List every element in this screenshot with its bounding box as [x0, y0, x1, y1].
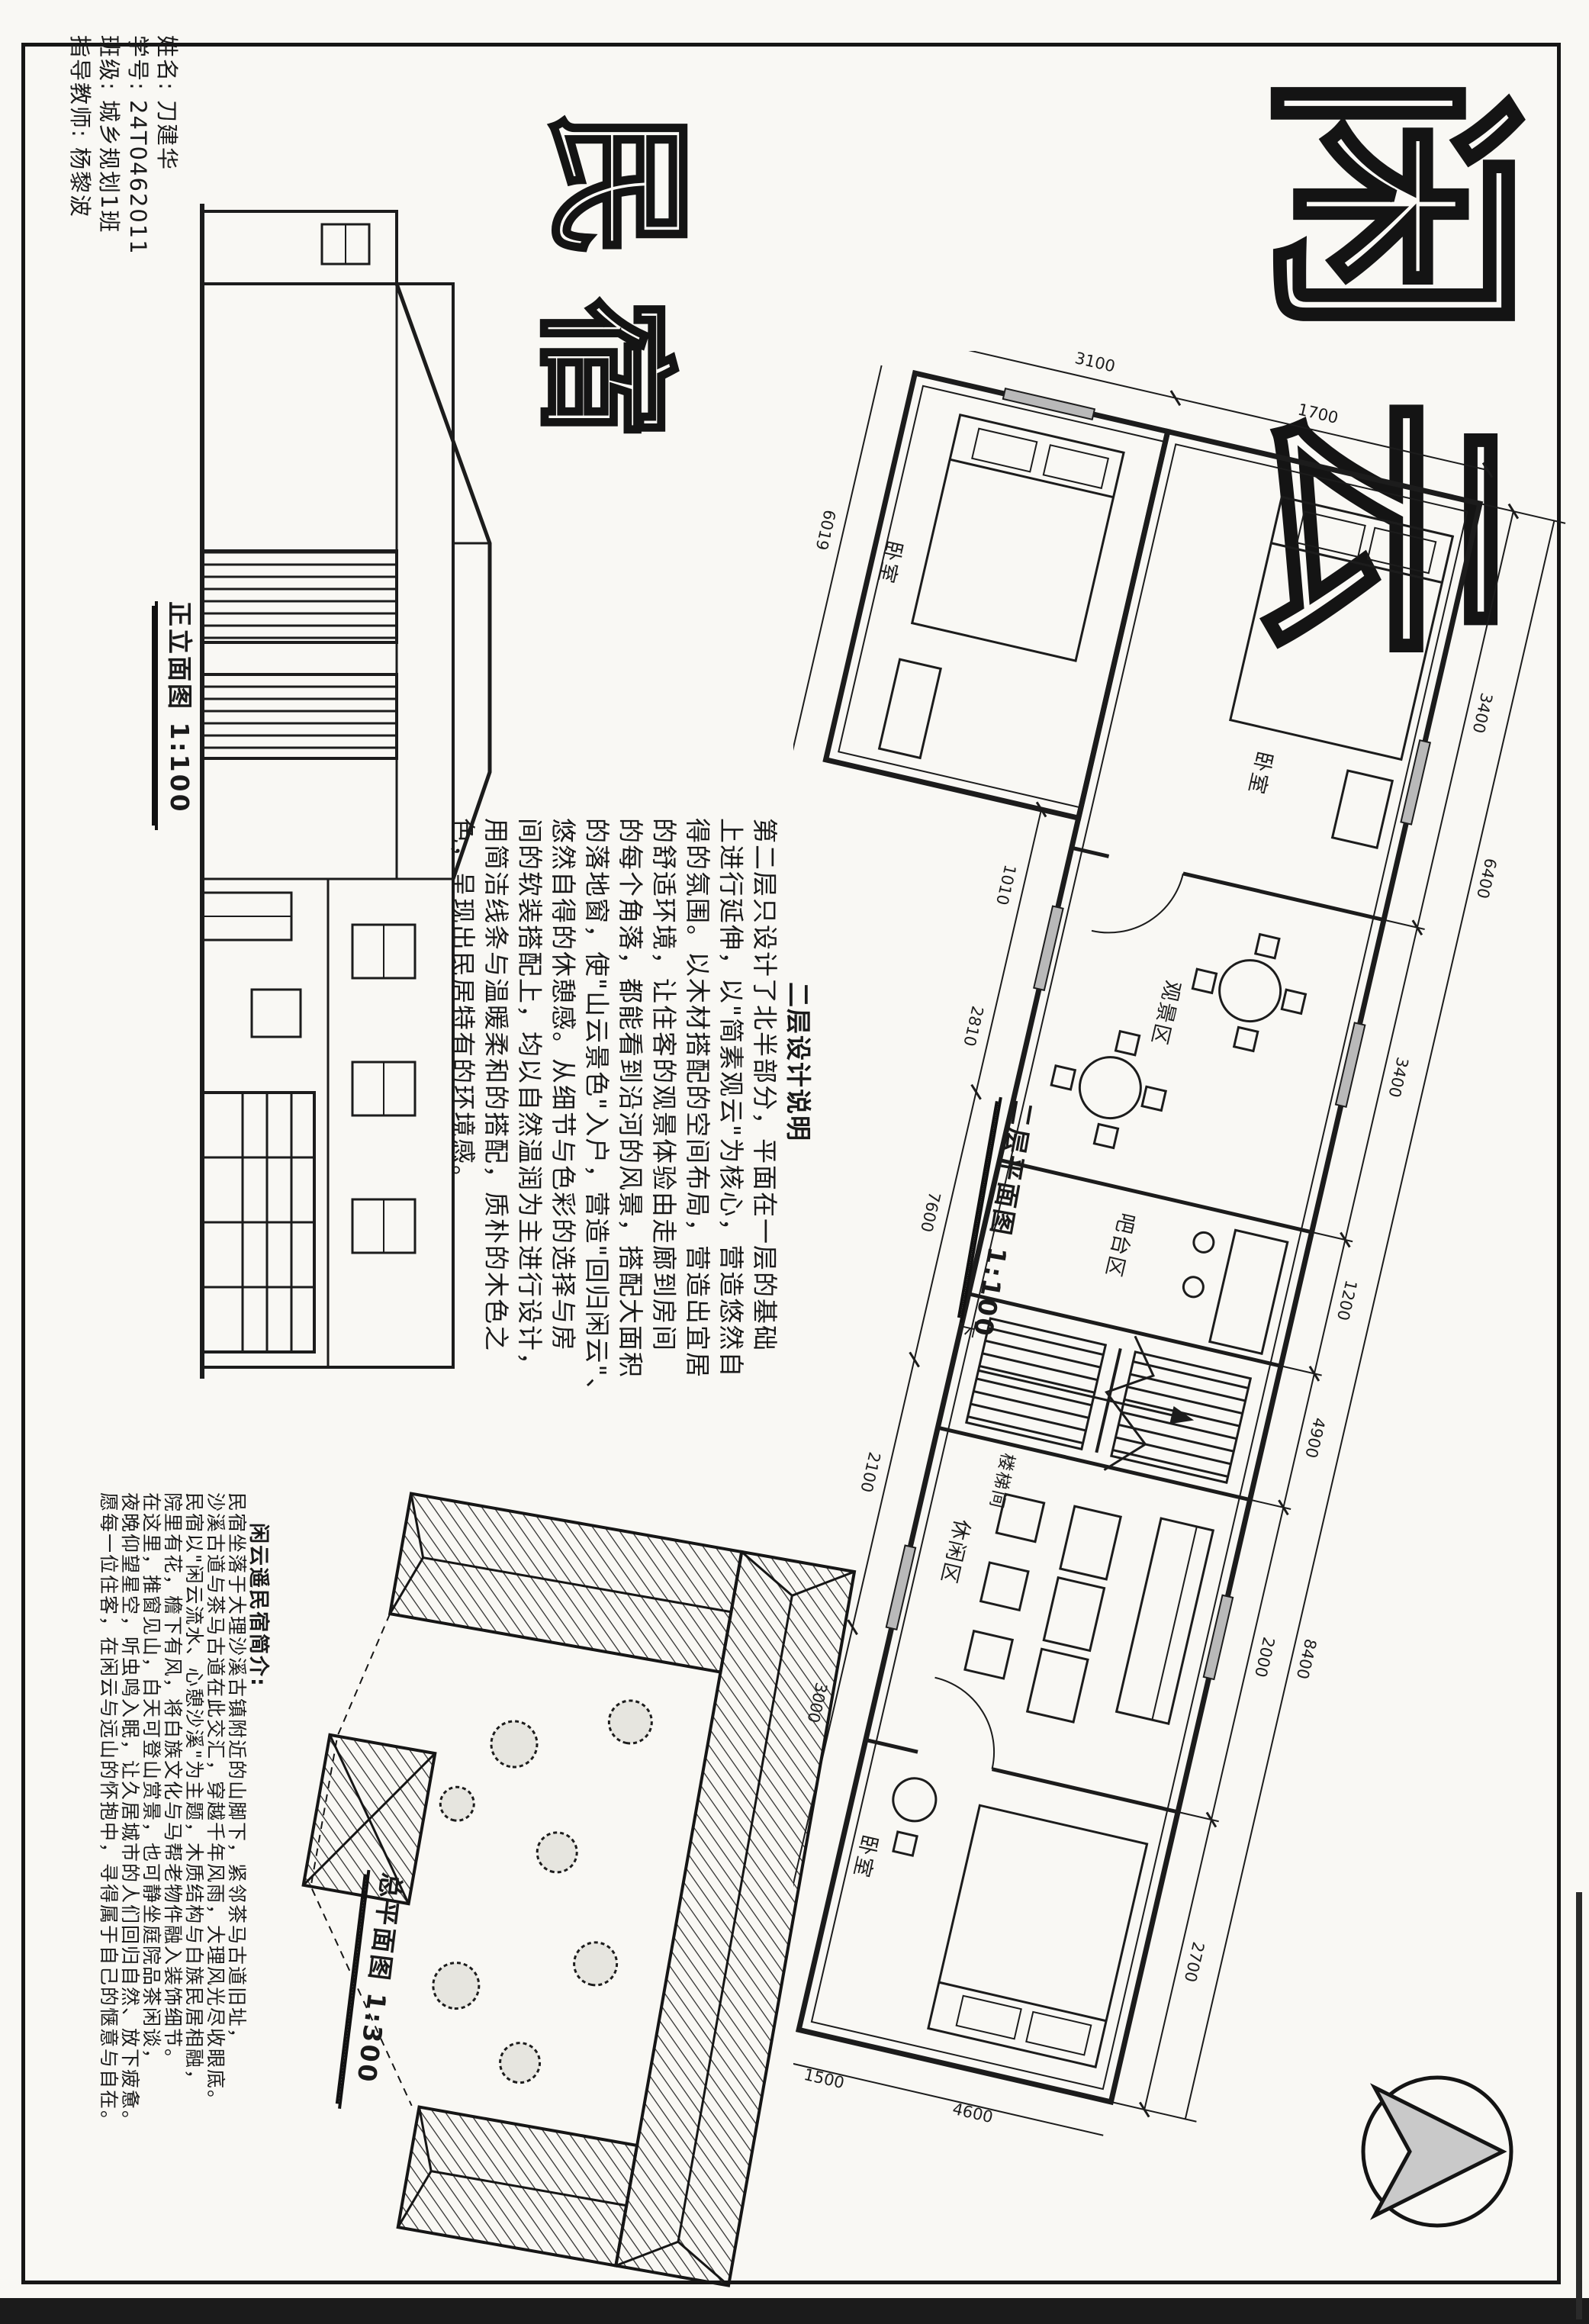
chair: [1094, 1124, 1118, 1148]
dim-text: 7600: [917, 1190, 944, 1234]
plan-wing-wall: [826, 373, 1168, 818]
pillow: [1368, 528, 1436, 573]
elevation-label: 正立面图 1:100: [155, 601, 200, 830]
bar-counter: [1210, 1230, 1288, 1354]
partition-wall: [1183, 874, 1384, 920]
stool: [1182, 1275, 1205, 1299]
coffee-table: [1044, 1578, 1104, 1651]
tree: [429, 1959, 483, 2013]
design-notes-line: 间的软装搭配上，均以自然温润为主进行设计，: [513, 818, 546, 1482]
intro-line: 在这里，推窗见山，白天可登山赏景，也可静坐庭院品茶闲谈，: [140, 1492, 162, 2255]
design-notes-line: 色，呈现出民居特有的环境感。: [445, 818, 479, 1482]
dim-text: 2700: [1181, 1940, 1208, 1984]
coffee-table: [1060, 1506, 1121, 1579]
design-notes-line: 悠然自得的休憩感。从细节与色彩的选择与房: [546, 818, 580, 1482]
room-label-bedroom: 卧室: [1243, 748, 1276, 797]
design-notes-line: 第二层只设计了北半部分，平面在一层的基础: [748, 818, 781, 1482]
door-swing: [918, 1678, 1009, 1769]
pillow: [957, 1996, 1021, 2039]
dim-text: 4600: [951, 2100, 994, 2126]
side-table: [1333, 771, 1393, 848]
design-notes-line: 上进行延伸，以"简素观云"为核心，营造悠然自: [714, 818, 748, 1482]
partition-wall: [992, 1769, 1178, 1812]
tree: [487, 1717, 541, 1771]
title-char-min: 民: [544, 111, 693, 301]
student-info-block: 姓名: 刀建华 学号: 24T0462011 班级: 城乡规划1班 指导教师: …: [63, 35, 182, 287]
dimension-line: [923, 351, 1488, 470]
dim-text: 6019: [812, 508, 839, 552]
design-notes-line: 的落地窗，使"山云景色"入户，营造"回归闲云"、: [580, 818, 613, 1482]
dim-text: 3400: [1385, 1055, 1411, 1099]
dim-text: 3400: [1469, 691, 1496, 735]
armchair: [981, 1563, 1028, 1610]
chair: [1282, 990, 1305, 1013]
north-arrow: [1356, 2054, 1520, 2256]
design-notes-line: 用简洁线条与温暖柔和的搭配，质朴的木色之: [479, 818, 513, 1482]
intro-heading: 闲云遥民宿简介:: [247, 1492, 269, 2255]
intro-line: 愿每一位住客，在闲云与远山的怀抱中，寻得属于自己的惬意与自在。: [98, 1492, 119, 2255]
intro-line: 院里有花，檐下有风，将白族文化与马帮老物件融入装饰细节。: [162, 1492, 183, 2255]
north-arrow-dart-icon: [1375, 2087, 1503, 2216]
dim-text: 3100: [1073, 351, 1117, 375]
room-label-bar-area: 吧台区: [1101, 1210, 1139, 1280]
chair: [1142, 1086, 1166, 1110]
student-id: 学号: 24T0462011: [124, 35, 153, 287]
chair: [1192, 969, 1216, 993]
slat-screen-2: [202, 674, 397, 758]
design-notes-line: 的每个角落，都能看到沿河的风景，搭配大面积: [613, 818, 647, 1482]
drawing-sheet: 姓名: 刀建华 学号: 24T0462011 班级: 城乡规划1班 指导教师: …: [0, 0, 1589, 2324]
armchair: [965, 1631, 1012, 1679]
tree: [606, 1698, 655, 1747]
sofa: [1117, 1518, 1214, 1724]
student-name: 姓名: 刀建华: [153, 35, 182, 287]
dim-text: 2000: [1251, 1635, 1278, 1679]
design-notes-line: 的舒适环境，让住客的观景体验由走廊到房间: [647, 818, 680, 1482]
pillow: [972, 429, 1037, 472]
lower-window: [252, 990, 301, 1037]
dim-text: 6400: [1473, 857, 1500, 900]
intro-line: 民宿坐落于大理沙溪古镇附近的山脚下，紧邻茶马古道旧址，: [226, 1492, 247, 2255]
slat-screen-1: [202, 551, 397, 642]
dimension-line: [793, 365, 882, 752]
tree: [438, 1785, 477, 1823]
round-table: [1214, 954, 1287, 1028]
design-notes-line: 得的氛围。以木材搭配的空间布局，营造出宜居: [680, 818, 714, 1482]
student-advisor: 指导教师: 杨黎波: [66, 35, 95, 287]
design-notes-block: 二层设计说明 第二层只设计了北半部分，平面在一层的基础 上进行延伸，以"简素观云…: [445, 818, 815, 1482]
intro-line: 夜晚仰望星空，听虫鸣入眠，让久居城市的人们回归自然、放下疲惫。: [119, 1492, 140, 2255]
bed: [912, 415, 1124, 661]
chair: [1051, 1066, 1075, 1090]
room-label-viewing-area: 观景区: [1147, 978, 1185, 1048]
dim-text: 8400: [1293, 1637, 1320, 1681]
round-table: [1073, 1051, 1147, 1125]
intro-line: 民宿以"闲云流水、心憩沙溪"为主题，木质结构与白族民居相融，: [183, 1492, 204, 2255]
dimension-tick: [915, 351, 1495, 478]
scan-edge-shadow-bottom: [0, 2298, 1589, 2324]
dim-text: 1200: [1333, 1279, 1360, 1322]
door-swing: [1092, 856, 1183, 948]
pillow: [1297, 511, 1365, 556]
tree: [534, 1830, 580, 1875]
dim-text: 1010: [992, 863, 1019, 906]
intro-block: 闲云遥民宿简介: 民宿坐落于大理沙溪古镇附近的山脚下，紧邻茶马古道旧址， 沙溪古…: [98, 1492, 269, 2255]
room-label-bedroom: 卧室: [873, 538, 906, 586]
chair: [1256, 935, 1279, 958]
tree: [571, 1939, 620, 1988]
intro-line: 沙溪古道与茶马古道在此交汇，穿越千年风雨，大理风光尽收眼底。: [204, 1492, 226, 2255]
chair: [893, 1832, 917, 1856]
wardrobe: [880, 659, 941, 758]
room-label-leisure-area: 休闲区: [936, 1517, 974, 1587]
pillow: [1044, 445, 1108, 488]
chair: [1234, 1027, 1258, 1051]
elevation-left-block: [202, 211, 397, 284]
site-plan-drawing: [229, 1473, 885, 2319]
partition-wall: [999, 1160, 1311, 1231]
tree: [497, 2040, 542, 2086]
small-table: [889, 1774, 940, 1825]
coffee-table: [1028, 1649, 1088, 1722]
dim-text: 2810: [960, 1004, 986, 1048]
room-label-stairwell: 楼梯间: [986, 1451, 1018, 1511]
floor-plan-drawing: 卧室 卧室 观景区 吧台区 楼梯间 休闲区 卧室 下: [793, 351, 1571, 2159]
dim-text: 4900: [1301, 1416, 1328, 1460]
scan-edge-shadow-right: [1576, 1892, 1582, 2319]
title-char-su: 宿: [534, 298, 675, 481]
dimension-line: [1144, 511, 1513, 2110]
plan-outer-wall: [799, 432, 1480, 2102]
bed: [928, 1805, 1147, 2067]
stool: [1192, 1231, 1215, 1254]
dim-text: 1700: [1296, 401, 1340, 427]
student-class: 班级: 城乡规划1班: [95, 35, 124, 287]
roof-outline: [397, 284, 490, 879]
dimension-line: [1185, 520, 1555, 2119]
chair: [1115, 1032, 1139, 1055]
pillow: [1026, 2012, 1091, 2055]
